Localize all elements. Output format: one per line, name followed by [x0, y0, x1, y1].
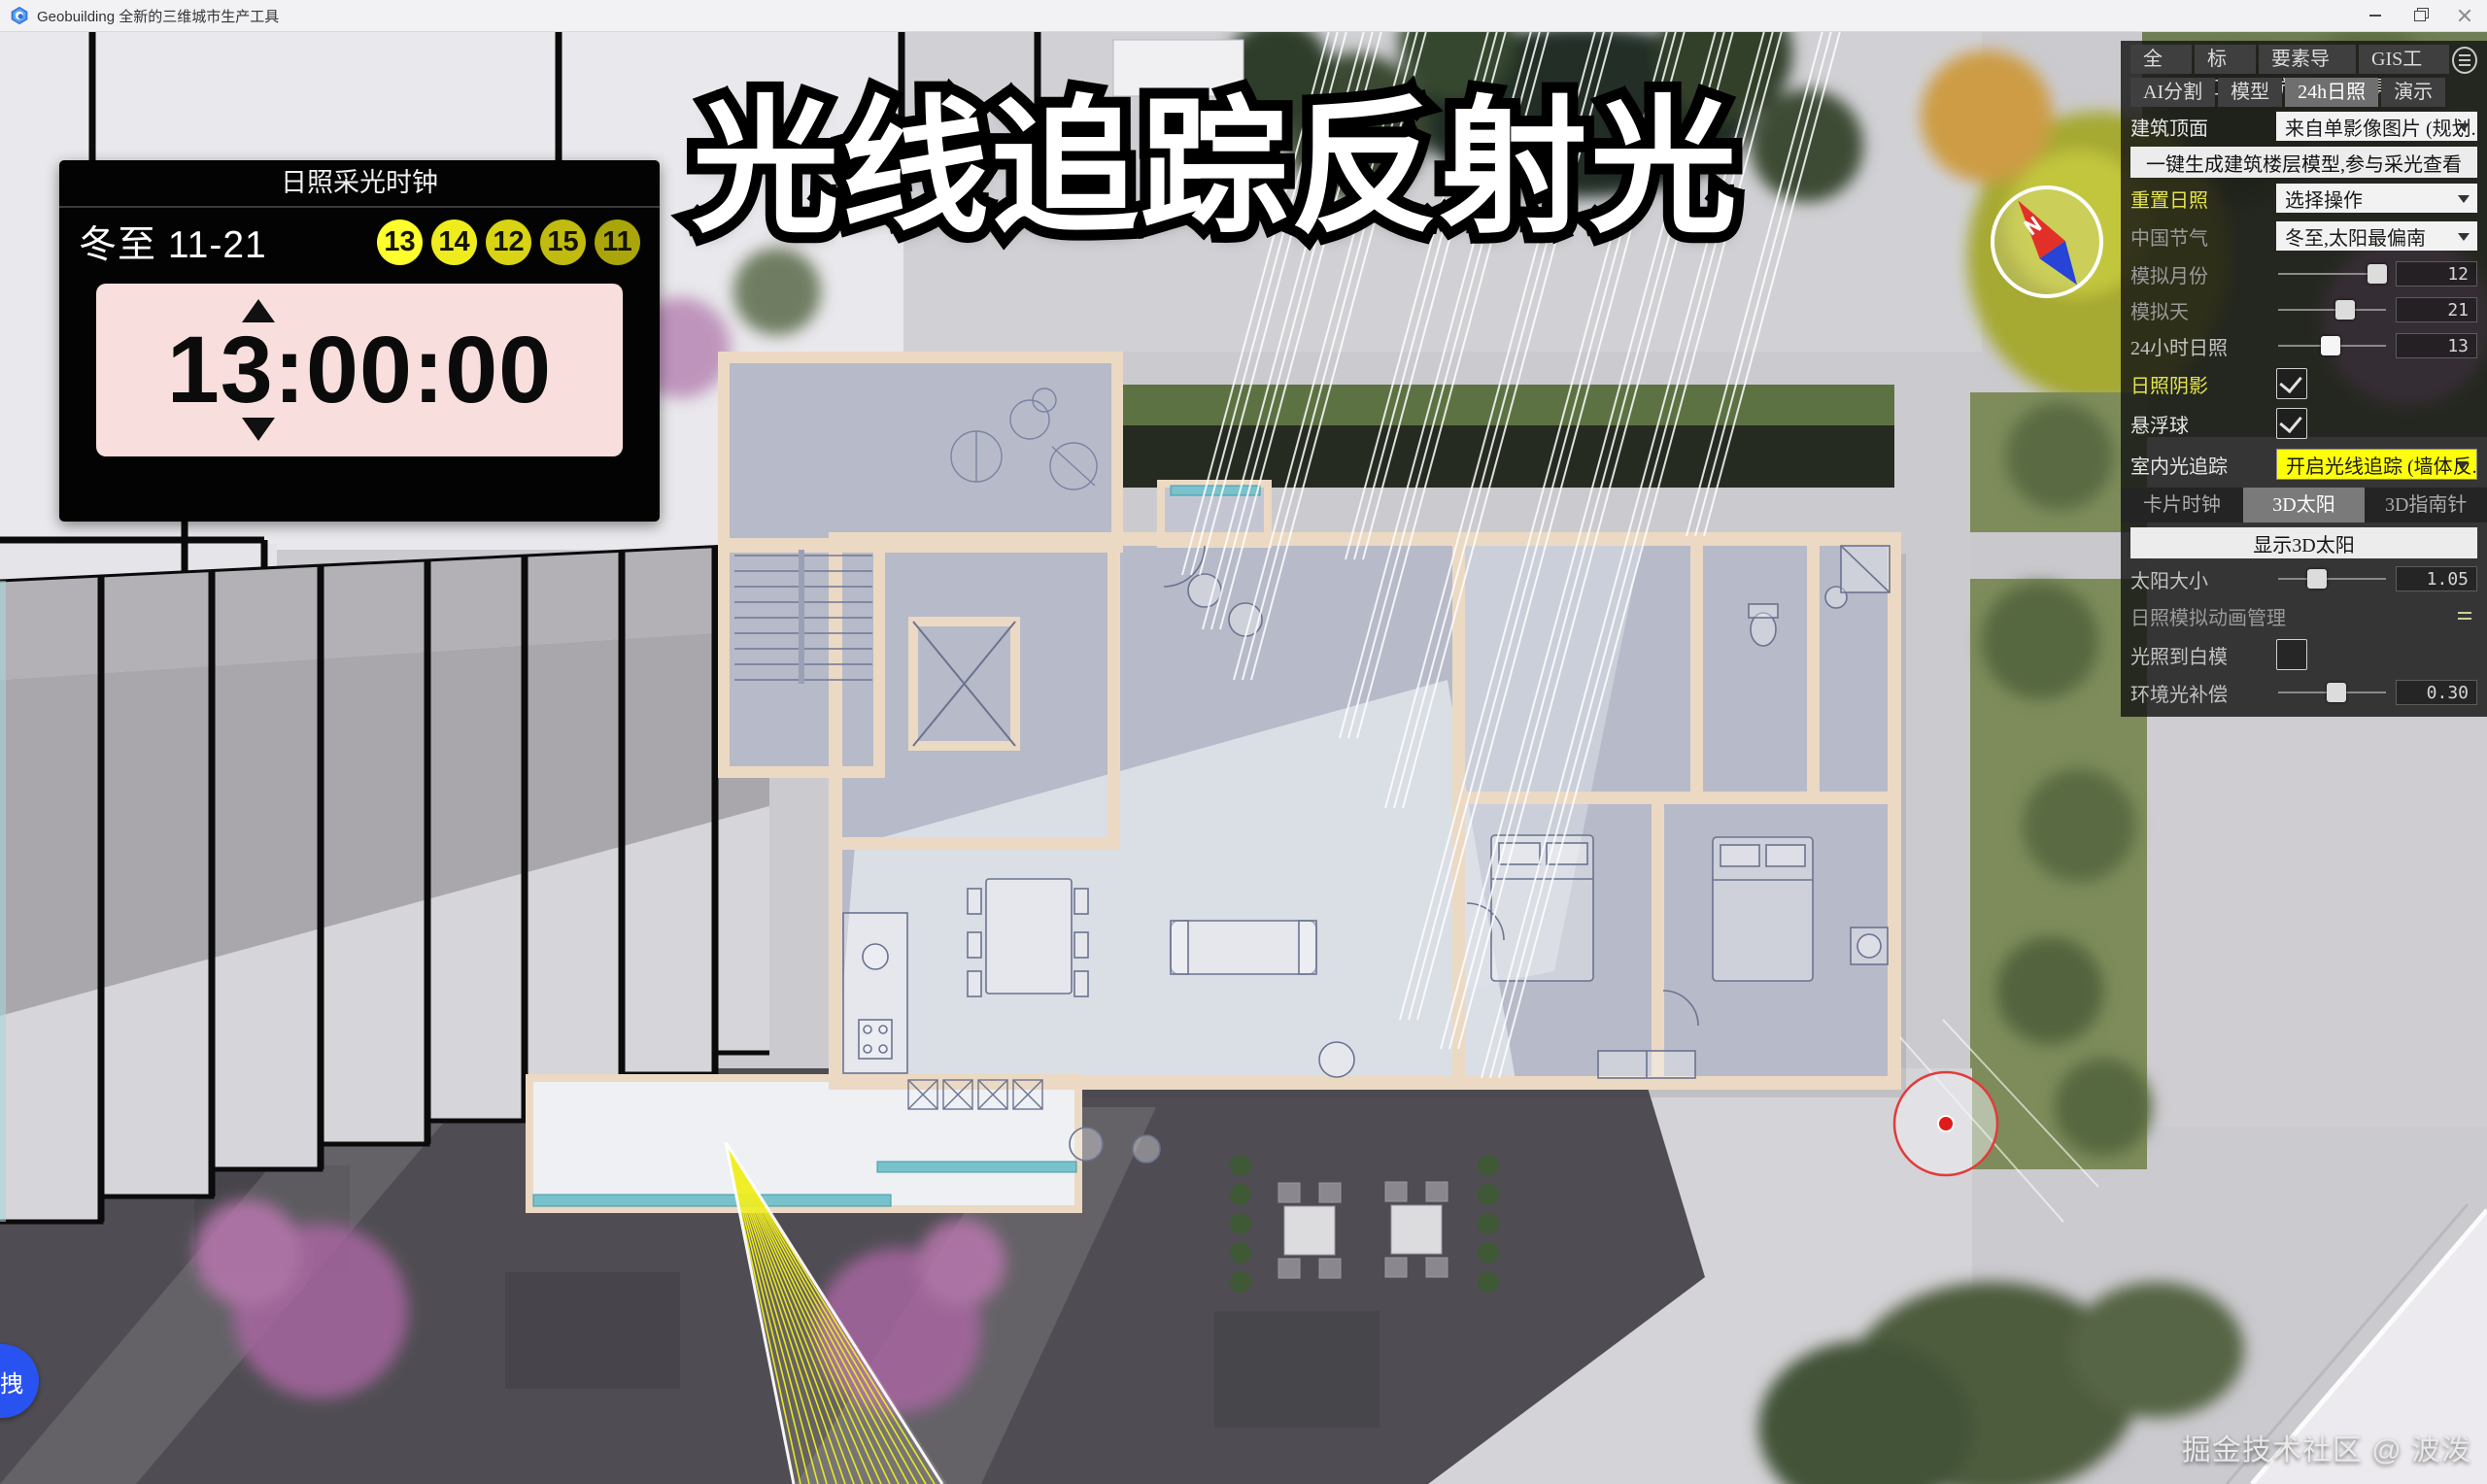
indoor-raytrace-value: 开启光线追踪 (墙体反...	[2286, 451, 2477, 479]
panel-menu-icon[interactable]	[2452, 47, 2477, 74]
slider-thumb[interactable]	[2321, 336, 2340, 355]
tab-element-nav[interactable]: 要素导航	[2259, 45, 2356, 74]
solar-term-dropdown[interactable]: 冬至,太阳最偏南	[2276, 221, 2477, 251]
solar-date: 11-21	[168, 224, 267, 266]
watermark: 掘金技术社区 @ 波泼	[2182, 1426, 2471, 1468]
window-title: Geobuilding 全新的三维城市生产工具	[37, 6, 279, 26]
clock-title: 日照采光时钟	[59, 160, 660, 208]
sim-hour-label: 24小时日照	[2130, 332, 2276, 360]
time-decrease-arrow-icon[interactable]	[242, 418, 275, 441]
float-ball-label: 悬浮球	[2130, 410, 2276, 438]
sim-day-value: 21	[2396, 297, 2477, 322]
building-top-dropdown[interactable]: 来自单影像图片 (规划...	[2276, 112, 2477, 141]
sun-size-value: 1.05	[2396, 566, 2477, 591]
subtab-3d-compass[interactable]: 3D指南针	[2365, 488, 2487, 523]
chevron-down-icon	[2458, 195, 2470, 203]
ambient-slider[interactable]	[2276, 682, 2388, 703]
light-on-white-label: 光照到白模	[2130, 641, 2276, 669]
indoor-raytrace-dropdown[interactable]: 开启光线追踪 (墙体反...	[2276, 449, 2477, 480]
close-button[interactable]	[2442, 0, 2487, 31]
tab-global[interactable]: 全局	[2130, 45, 2192, 74]
chevron-down-icon	[2458, 123, 2470, 131]
animation-manager-menu-icon[interactable]	[2458, 612, 2471, 620]
app-logo-icon	[10, 6, 29, 25]
restore-icon	[2414, 11, 2426, 21]
tab-demo[interactable]: 演示	[2381, 78, 2445, 107]
building-top-value: 来自单影像图片 (规划...	[2285, 113, 2477, 141]
small-building-roof	[1113, 40, 1243, 96]
hour-badge[interactable]: 12	[486, 219, 531, 265]
ambient-label: 环境光补偿	[2130, 679, 2276, 707]
compass-icon[interactable]	[1993, 187, 2101, 296]
solar-term: 冬至	[79, 224, 156, 266]
sim-hour-slider[interactable]	[2276, 335, 2388, 356]
show-3d-sun-button[interactable]: 显示3D太阳	[2130, 527, 2477, 558]
sim-day-slider[interactable]	[2276, 299, 2388, 320]
subtab-card-clock[interactable]: 卡片时钟	[2121, 488, 2243, 523]
reset-sunlight-value: 选择操作	[2285, 185, 2363, 213]
time-value: 13:00:00	[96, 284, 623, 456]
hour-badge[interactable]: 15	[540, 219, 586, 265]
hour-badge[interactable]: 14	[431, 219, 477, 265]
chevron-down-icon	[2458, 233, 2470, 241]
close-icon	[2458, 9, 2471, 22]
indoor-raytrace-label: 室内光追踪	[2130, 451, 2276, 479]
reset-sunlight-label: 重置日照	[2130, 185, 2276, 213]
solar-term-value: 冬至,太阳最偏南	[2285, 222, 2426, 251]
sunlight-clock-card: 日照采光时钟 冬至 11-21 13 14 12 15 11 13:00:00	[59, 160, 660, 522]
sim-day-label: 模拟天	[2130, 296, 2276, 324]
slider-thumb[interactable]	[2307, 569, 2327, 589]
subtab-3d-sun[interactable]: 3D太阳	[2243, 488, 2366, 523]
restore-button[interactable]	[2398, 0, 2442, 31]
minimize-icon	[2369, 15, 2381, 17]
tab-model[interactable]: 模型	[2218, 78, 2282, 107]
tab-gis-tools[interactable]: GIS工具	[2359, 45, 2449, 74]
sun-size-label: 太阳大小	[2130, 565, 2276, 593]
sun-position-marker[interactable]	[1894, 1072, 1997, 1175]
title-bar: Geobuilding 全新的三维城市生产工具	[0, 0, 2487, 32]
slider-thumb[interactable]	[2335, 300, 2355, 320]
hour-badge[interactable]: 13	[377, 219, 423, 265]
float-ball-checkbox[interactable]	[2276, 408, 2307, 439]
slider-thumb[interactable]	[2327, 683, 2346, 702]
chevron-down-icon	[2457, 461, 2469, 469]
hour-badge[interactable]: 11	[595, 219, 640, 265]
hour-badges: 13 14 12 15 11	[368, 219, 640, 265]
generate-floors-button[interactable]: 一键生成建筑楼层模型,参与采光查看	[2130, 147, 2477, 178]
solar-term-label: 中国节气	[2130, 222, 2276, 251]
tab-24h-sunlight[interactable]: 24h日照	[2285, 78, 2378, 107]
tab-mark-red[interactable]: 标红	[2195, 45, 2256, 74]
shadow-label: 日照阴影	[2130, 370, 2276, 398]
sunlight-control-panel: 全局 标红 要素导航 GIS工具 AI分割 模型 24h日照 演示 建筑顶面 来…	[2121, 41, 2487, 717]
sim-hour-value: 13	[2396, 333, 2477, 358]
elevator-shaft	[913, 622, 1015, 746]
animation-manager-label: 日照模拟动画管理	[2130, 602, 2286, 630]
minimize-button[interactable]	[2353, 0, 2398, 31]
solar-term-date: 冬至 11-21	[79, 215, 267, 269]
drag-handle-label: 拽	[0, 1365, 23, 1399]
reset-sunlight-dropdown[interactable]: 选择操作	[2276, 184, 2477, 213]
time-display: 13:00:00	[96, 284, 623, 456]
app-window: Geobuilding 全新的三维城市生产工具 光线追踪反射光 光线追踪反射光 …	[0, 0, 2487, 1484]
sim-month-slider[interactable]	[2276, 263, 2388, 285]
light-on-white-checkbox[interactable]	[2276, 639, 2307, 670]
sim-month-value: 12	[2396, 261, 2477, 287]
sun-size-slider[interactable]	[2276, 568, 2388, 590]
building-top-label: 建筑顶面	[2130, 113, 2276, 141]
slider-thumb[interactable]	[2368, 264, 2387, 284]
tab-ai-segment[interactable]: AI分割	[2130, 78, 2215, 107]
shadow-checkbox[interactable]	[2276, 368, 2307, 399]
ambient-value: 0.30	[2396, 680, 2477, 705]
sim-month-label: 模拟月份	[2130, 260, 2276, 288]
